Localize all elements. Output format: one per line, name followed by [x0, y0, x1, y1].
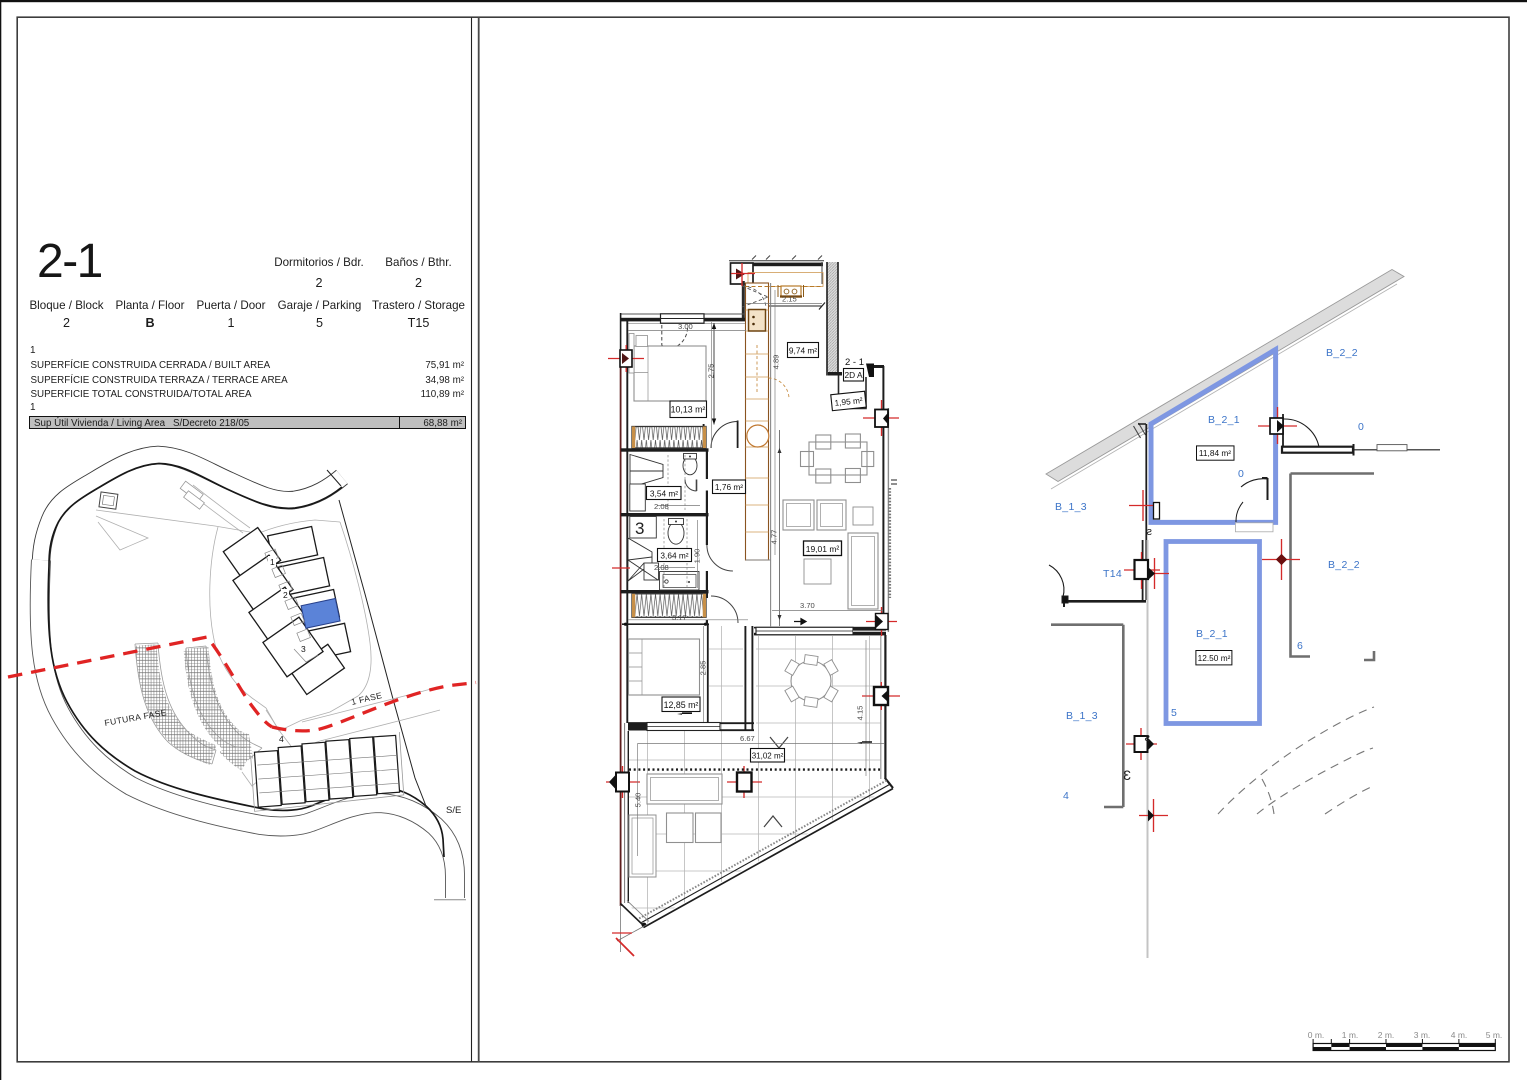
svg-text:3,54 m²: 3,54 m²	[650, 489, 678, 499]
svg-text:3.00: 3.00	[678, 322, 693, 331]
svg-text:0: 0	[1238, 468, 1244, 480]
svg-text:2.75: 2.75	[707, 364, 716, 379]
svg-text:3.17: 3.17	[672, 613, 687, 622]
svg-text:B_1_3: B_1_3	[1066, 710, 1098, 722]
svg-text:S/E: S/E	[446, 805, 461, 816]
svg-text:4.77: 4.77	[770, 530, 779, 545]
svg-text:2.08: 2.08	[654, 502, 669, 511]
svg-text:T14: T14	[1103, 568, 1122, 580]
svg-text:B_2_2: B_2_2	[1328, 559, 1360, 571]
svg-text:B_2_2: B_2_2	[1326, 347, 1358, 359]
svg-text:6: 6	[1297, 640, 1303, 652]
svg-text:1: 1	[270, 557, 275, 567]
svg-text:4: 4	[279, 734, 284, 744]
svg-text:6.67: 6.67	[740, 734, 755, 743]
svg-text:4: 4	[1063, 790, 1069, 802]
svg-text:2 - 1: 2 - 1	[845, 357, 864, 368]
svg-text:3: 3	[635, 519, 644, 538]
svg-text:2.85: 2.85	[699, 661, 708, 676]
svg-text:3: 3	[1123, 767, 1131, 783]
svg-text:11,84 m²: 11,84 m²	[1199, 448, 1231, 458]
svg-text:1.90: 1.90	[693, 549, 702, 564]
svg-text:2 m.: 2 m.	[1378, 1030, 1395, 1040]
svg-text:3.70: 3.70	[800, 601, 815, 610]
svg-text:4.89: 4.89	[772, 355, 781, 370]
svg-text:2.08: 2.08	[654, 563, 669, 572]
svg-text:9,74 m²: 9,74 m²	[789, 346, 817, 356]
svg-text:4 m.: 4 m.	[1451, 1030, 1468, 1040]
svg-text:3: 3	[301, 644, 306, 654]
svg-text:B_1_3: B_1_3	[1055, 501, 1087, 513]
svg-text:5.40: 5.40	[634, 793, 643, 808]
svg-text:4.15: 4.15	[856, 706, 865, 721]
svg-text:1 FASE: 1 FASE	[350, 690, 383, 707]
svg-text:s: s	[1144, 732, 1150, 744]
svg-text:2D A: 2D A	[845, 370, 863, 380]
svg-text:1,76 m²: 1,76 m²	[715, 482, 743, 492]
svg-text:2: 2	[283, 590, 288, 600]
svg-text:0 m.: 0 m.	[1308, 1030, 1325, 1040]
svg-text:3 m.: 3 m.	[1414, 1030, 1431, 1040]
svg-text:s: s	[1146, 526, 1152, 538]
svg-text:B_2_1: B_2_1	[1208, 414, 1240, 426]
svg-text:0: 0	[1358, 421, 1364, 433]
svg-text:31,02 m²: 31,02 m²	[752, 752, 784, 761]
svg-text:2.15: 2.15	[782, 295, 797, 304]
svg-text:10,13 m²: 10,13 m²	[671, 405, 706, 415]
svg-text:3,64 m²: 3,64 m²	[660, 551, 688, 561]
svg-text:5: 5	[1171, 707, 1177, 719]
svg-text:1 m.: 1 m.	[1342, 1030, 1359, 1040]
svg-text:12,85 m²: 12,85 m²	[664, 700, 699, 710]
svg-text:12.50 m²: 12.50 m²	[1198, 653, 1231, 663]
svg-text:B_2_1: B_2_1	[1196, 628, 1228, 640]
svg-text:19,01 m²: 19,01 m²	[806, 544, 840, 554]
svg-text:5 m.: 5 m.	[1486, 1030, 1503, 1040]
